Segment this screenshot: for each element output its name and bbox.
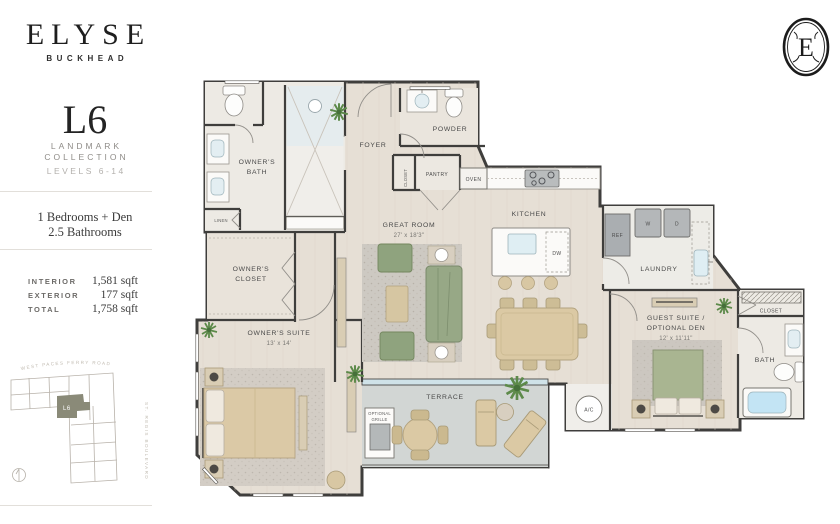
area-label: INTERIOR [28,277,77,286]
monogram-badge: E [780,14,832,80]
label-owners-closet-2: CLOSET [235,276,266,283]
label-great-room: GREAT ROOM [383,222,436,229]
label-bath: BATH [755,357,775,364]
compass-icon [13,469,26,482]
area-label: TOTAL [28,305,60,314]
label-oven: OVEN [466,177,482,183]
label-foyer: FOYER [360,142,387,149]
label-laundry: LAUNDRY [640,266,677,273]
label-foyer-closet: CLOSET [403,169,408,187]
key-plan: WEST PACES FERRY ROAD ST. REGIS BOULEVAR… [5,350,160,490]
label-guest-suite-dims: 12' x 11'11" [659,336,693,342]
brand-location: BUCKHEAD [0,54,170,63]
label-dryer: D [675,222,679,228]
monogram-letter: E [798,33,814,62]
label-owners-bath: OWNER'S [239,159,276,166]
floor-plan: OWNER'S BATH LINEN FOYER CLOSET POWDER P… [195,72,825,522]
area-row-interior: INTERIOR 1,581 sqft [28,275,124,288]
collection-line1: LANDMARK [0,141,170,151]
road-label-top-text: WEST PACES FERRY ROAD [20,360,111,371]
label-owners-suite: OWNER'S SUITE [248,330,311,337]
bathrooms-label: 2.5 Bathrooms [0,225,170,240]
divider [0,505,152,506]
area-label: EXTERIOR [28,291,79,300]
floorplan-sheet: ELYSE BUCKHEAD L6 LANDMARK COLLECTION LE… [0,0,840,524]
area-row-exterior: EXTERIOR 177 sqft [28,289,124,302]
label-kitchen: KITCHEN [512,211,547,218]
label-guest-closet: CLOSET [760,309,782,315]
label-guest-suite: GUEST SUITE / [647,315,705,322]
brand-logo: ELYSE [0,18,170,52]
building-footprint [11,373,117,483]
label-linen: LINEN [214,218,227,223]
key-plan-unit-label: L6 [63,406,71,412]
label-terrace: TERRACE [426,394,463,401]
label-optional-grille-2: GRILLE [371,417,387,422]
divider [0,249,152,250]
label-ref: REF [612,233,623,239]
label-optional-grille: OPTIONAL [368,411,391,416]
label-ac: A/C [584,408,594,414]
levels-label: LEVELS 6-14 [0,166,170,176]
label-dw: DW [552,251,561,257]
area-value: 1,581 sqft [92,275,138,287]
collection-line2: COLLECTION [0,152,170,162]
plan-code: L6 [0,96,170,143]
label-great-room-dims: 27' x 18'3" [394,233,425,239]
area-value: 1,758 sqft [92,303,138,315]
road-label-top: WEST PACES FERRY ROAD [20,360,111,371]
bedrooms-label: 1 Bedrooms + Den [0,210,170,225]
area-value: 177 sqft [101,289,138,301]
label-washer: W [645,222,650,228]
area-row-total: TOTAL 1,758 sqft [28,303,124,316]
label-owners-closet: OWNER'S [233,266,270,273]
dining-set [487,298,587,370]
divider [0,191,152,192]
key-plan-unit-highlight [57,394,90,418]
label-guest-suite-2: OPTIONAL DEN [647,325,706,332]
label-owners-bath-2: BATH [247,169,267,176]
label-pantry: PANTRY [426,172,448,178]
label-owners-suite-dims: 13' x 14' [267,341,292,347]
road-label-right: ST. REGIS BOULEVARD [144,402,149,480]
label-powder: POWDER [433,126,468,133]
